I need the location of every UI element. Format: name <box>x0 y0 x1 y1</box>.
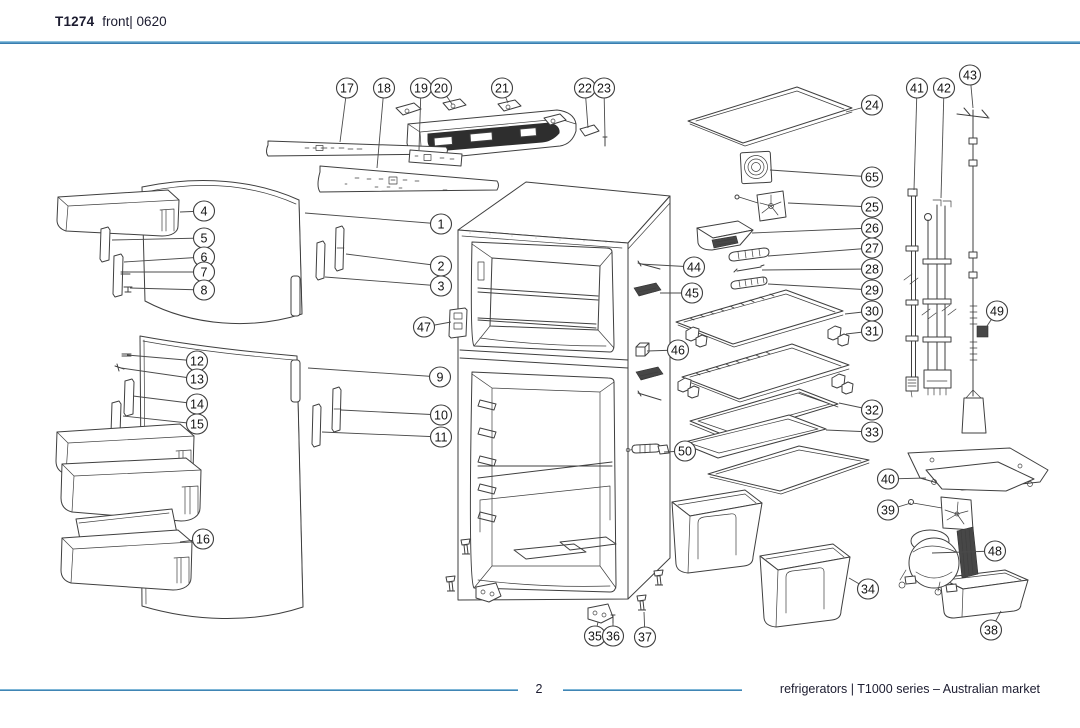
door-bin-lower <box>61 530 192 590</box>
svg-text:42: 42 <box>937 82 951 96</box>
trim-5 <box>100 227 110 262</box>
svg-text:5: 5 <box>201 232 208 246</box>
callout-33: 33 <box>826 422 883 442</box>
fridge-door-handle-slot <box>291 360 300 402</box>
svg-text:19: 19 <box>414 82 428 96</box>
bottom-hinge-35 <box>588 604 613 623</box>
machine-parts <box>899 448 1048 595</box>
callout-30: 30 <box>845 301 883 321</box>
page-header: T1274front| 0620 <box>55 14 167 29</box>
svg-text:13: 13 <box>190 373 204 387</box>
part-29 <box>731 277 767 289</box>
svg-text:17: 17 <box>340 82 354 96</box>
view-label: front| 0620 <box>102 14 166 29</box>
callout-36: 36 <box>603 623 624 646</box>
screw-13 <box>115 364 124 371</box>
svg-text:28: 28 <box>865 263 879 277</box>
footer-rule-mid <box>563 689 742 691</box>
callout-31: 31 <box>846 321 883 341</box>
callout-34: 34 <box>849 578 879 599</box>
bracket-22 <box>580 125 599 136</box>
svg-text:14: 14 <box>190 398 204 412</box>
callout-22: 22 <box>575 78 596 128</box>
svg-text:38: 38 <box>984 624 998 638</box>
svg-text:39: 39 <box>881 504 895 518</box>
svg-text:11: 11 <box>435 431 448 445</box>
callout-10: 10 <box>341 405 452 425</box>
callout-2: 2 <box>346 254 452 276</box>
svg-text:45: 45 <box>685 287 699 301</box>
tubes-harnesses <box>904 108 989 433</box>
freezer-cavity <box>471 242 614 352</box>
model-number: T1274 <box>55 14 94 29</box>
svg-text:9: 9 <box>437 371 444 385</box>
trim-3 <box>316 241 325 280</box>
callout-38: 38 <box>981 611 1002 640</box>
cube-46 <box>636 343 649 356</box>
svg-text:36: 36 <box>606 630 620 644</box>
svg-text:49: 49 <box>990 305 1004 319</box>
trim-2 <box>335 226 344 271</box>
callout-27: 27 <box>768 238 883 258</box>
callout-25: 25 <box>788 197 883 217</box>
svg-text:35: 35 <box>588 630 602 644</box>
svg-text:43: 43 <box>963 69 977 83</box>
callout-20: 20 <box>431 78 453 104</box>
parts-diagram-page: { "header": { "model": "T1274", "view": … <box>0 0 1080 728</box>
callout-9: 9 <box>308 367 451 387</box>
trim-6 <box>113 254 123 297</box>
callout-47: 47 <box>414 317 452 337</box>
sensor-cable-43 <box>957 108 989 433</box>
evap-tray-26 <box>697 221 753 250</box>
fridge-cavity <box>470 372 616 592</box>
shelf-parts <box>676 290 869 494</box>
callout-3: 3 <box>325 276 452 296</box>
svg-text:21: 21 <box>495 82 509 96</box>
svg-text:23: 23 <box>597 82 611 96</box>
svg-text:33: 33 <box>865 426 879 440</box>
svg-text:18: 18 <box>377 82 391 96</box>
trim-14 <box>124 379 134 416</box>
display-board-18 <box>318 166 499 192</box>
crisper-bin-left <box>672 490 762 573</box>
fan-25 <box>735 191 786 221</box>
trim-10 <box>332 387 341 432</box>
footer-caption: refrigerators | T1000 series – Australia… <box>750 682 1040 696</box>
svg-text:50: 50 <box>678 445 692 459</box>
svg-text:29: 29 <box>865 284 879 298</box>
compressor-bracket-40 <box>908 448 1048 491</box>
exploded-diagram: 1234567891011121314151617181920212223242… <box>0 46 1080 686</box>
svg-text:27: 27 <box>865 242 879 256</box>
svg-text:1: 1 <box>438 218 445 232</box>
svg-text:20: 20 <box>434 82 448 96</box>
svg-text:31: 31 <box>865 325 879 339</box>
svg-text:26: 26 <box>865 222 879 236</box>
svg-text:24: 24 <box>865 99 879 113</box>
svg-text:40: 40 <box>881 473 895 487</box>
trim-11 <box>312 404 321 447</box>
callout-26: 26 <box>752 218 883 238</box>
svg-text:16: 16 <box>196 533 210 547</box>
callout-39: 39 <box>878 500 912 520</box>
fan-grille-65 <box>740 151 772 184</box>
svg-text:46: 46 <box>671 344 685 358</box>
svg-text:47: 47 <box>417 321 431 335</box>
hinge-47 <box>449 308 467 338</box>
svg-text:3: 3 <box>438 280 445 294</box>
svg-text:25: 25 <box>865 201 879 215</box>
svg-text:10: 10 <box>434 409 448 423</box>
control-panel-assembly <box>267 99 608 192</box>
callout-49: 49 <box>985 301 1008 329</box>
callout-37: 37 <box>635 612 656 647</box>
svg-text:15: 15 <box>190 418 204 432</box>
callout-41: 41 <box>907 78 928 190</box>
header-rule <box>0 41 1080 44</box>
condenser-fan-39 <box>909 497 974 530</box>
svg-text:34: 34 <box>861 583 875 597</box>
glass-shelf-24 <box>688 87 852 146</box>
freezer-door-handle-slot <box>291 276 300 316</box>
screw-23 <box>603 137 607 146</box>
freezer-parts <box>688 87 852 289</box>
callout-17: 17 <box>337 78 358 142</box>
callout-42: 42 <box>934 78 955 198</box>
crisper-bin-34 <box>760 544 850 627</box>
svg-text:65: 65 <box>865 171 879 185</box>
callout-11: 11 <box>322 427 452 447</box>
svg-text:12: 12 <box>190 355 204 369</box>
callout-28: 28 <box>762 259 883 279</box>
door-bin-middle <box>61 458 201 521</box>
door-bin-4 <box>57 190 179 236</box>
callout-32: 32 <box>839 400 883 420</box>
page-number: 2 <box>527 682 551 696</box>
harness-42 <box>922 200 956 395</box>
svg-text:7: 7 <box>201 266 208 280</box>
svg-text:44: 44 <box>687 261 701 275</box>
svg-text:22: 22 <box>578 82 592 96</box>
svg-text:30: 30 <box>865 305 879 319</box>
callout-1: 1 <box>305 213 452 234</box>
part-27 <box>729 248 769 261</box>
cabinet-side <box>628 196 670 599</box>
callout-21: 21 <box>492 78 513 103</box>
svg-text:2: 2 <box>438 260 445 274</box>
svg-text:8: 8 <box>201 284 208 298</box>
svg-text:4: 4 <box>201 205 208 219</box>
svg-text:37: 37 <box>638 631 652 645</box>
tube-41 <box>904 189 918 397</box>
glass-shelf-46 <box>682 344 849 402</box>
rod-28 <box>734 265 764 272</box>
svg-text:48: 48 <box>988 545 1002 559</box>
callout-65: 65 <box>770 167 883 187</box>
svg-text:32: 32 <box>865 404 879 418</box>
footer-rule-left <box>0 689 518 691</box>
callout-43: 43 <box>960 65 981 108</box>
svg-text:41: 41 <box>910 82 924 96</box>
